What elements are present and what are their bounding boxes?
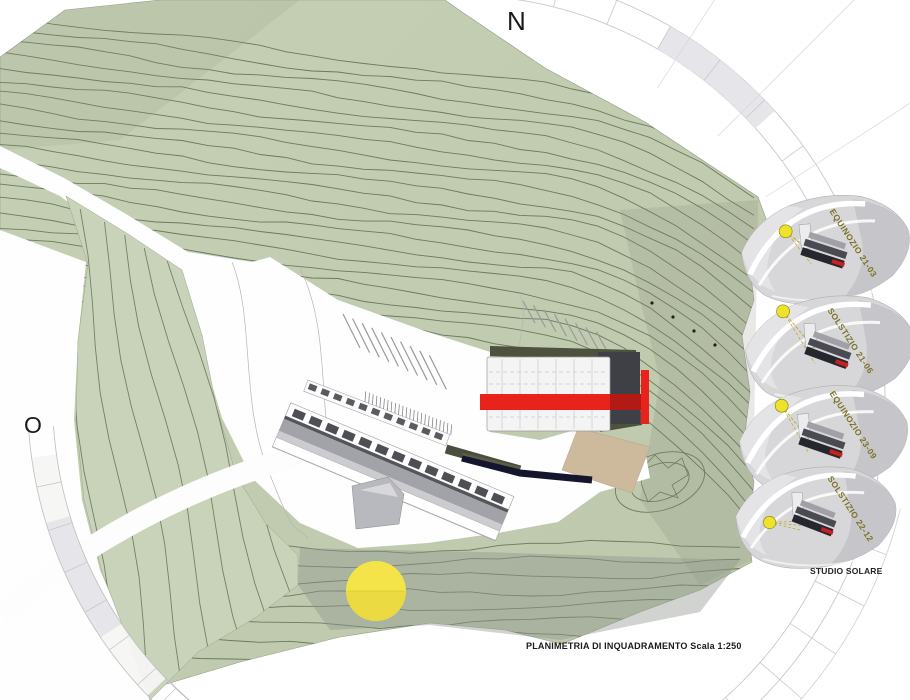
solar-study-title: STUDIO SOLARE xyxy=(810,566,883,576)
plan-caption: PLANIMETRIA DI INQUADRAMENTO Scala 1:250 xyxy=(526,641,742,651)
sun-position-dot xyxy=(763,516,776,529)
west-label: O xyxy=(24,412,42,439)
north-label: N xyxy=(507,6,526,37)
solar-study-diagrams xyxy=(734,188,910,572)
site-plan-drawing xyxy=(0,0,910,700)
main-building xyxy=(480,346,649,432)
sun-marker xyxy=(346,561,406,621)
site-plan-sheet: N O STUDIO SOLARE PLANIMETRIA DI INQUADR… xyxy=(0,0,910,700)
solar-diagram xyxy=(737,188,910,311)
